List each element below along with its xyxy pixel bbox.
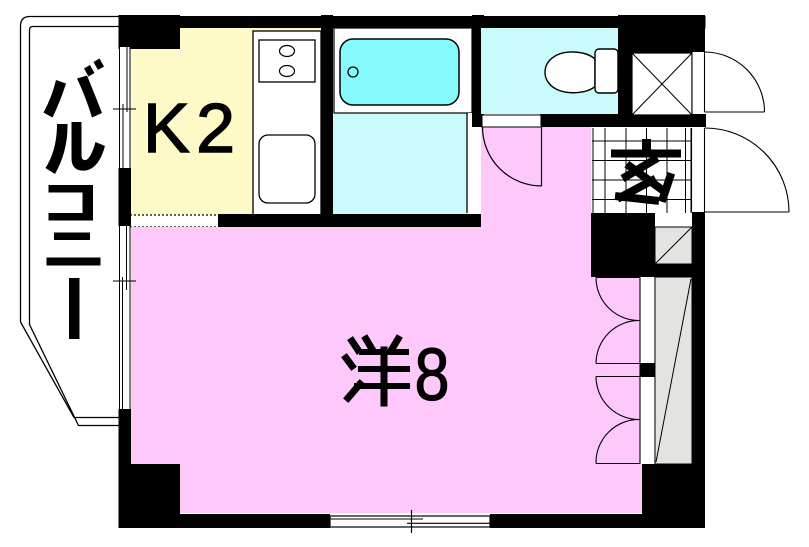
svg-text:K2: K2 xyxy=(143,89,235,167)
svg-text:8: 8 xyxy=(415,333,450,416)
